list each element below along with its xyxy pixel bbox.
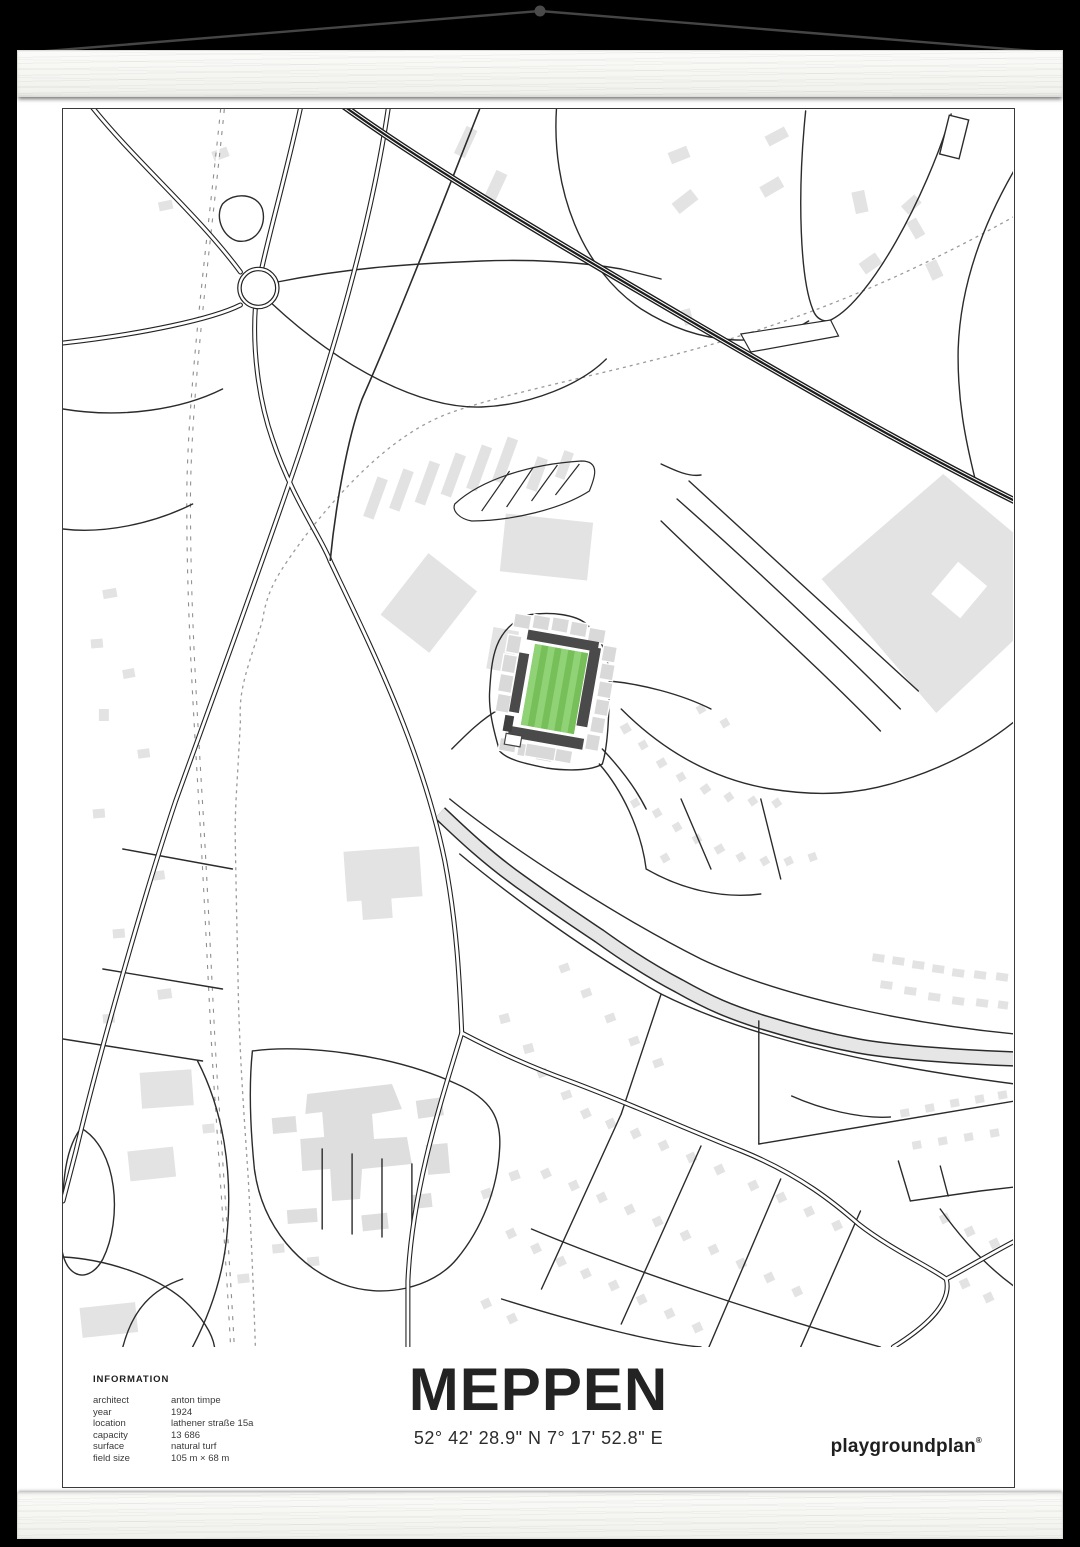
building-footprint	[783, 856, 794, 867]
building-footprint	[272, 1243, 285, 1253]
building-footprint	[989, 1128, 999, 1137]
building-footprint	[415, 460, 440, 505]
registered-mark: ®	[976, 1436, 982, 1445]
school-building	[343, 846, 422, 901]
building-footprint	[652, 1216, 664, 1228]
building-footprint	[668, 146, 691, 165]
building-footprint	[925, 259, 943, 280]
string-knot	[535, 6, 546, 17]
building-footprint	[363, 476, 388, 519]
building-footprint	[713, 1164, 725, 1176]
building-footprint	[892, 956, 905, 966]
building-footprint	[596, 1192, 608, 1204]
warehouse-building	[822, 474, 1013, 713]
roundabout	[239, 269, 277, 307]
building-footprint	[928, 992, 941, 1002]
building-footprint	[719, 718, 730, 729]
building-footprint	[808, 852, 818, 862]
building-footprint	[506, 1313, 518, 1325]
highway	[330, 109, 1013, 501]
wood-hanger-bottom	[17, 1492, 1063, 1539]
building-footprint	[499, 1013, 511, 1024]
building-footprint	[997, 1090, 1007, 1099]
building-footprint	[700, 783, 712, 795]
building-footprint	[771, 797, 782, 808]
building-footprint	[555, 1256, 567, 1268]
building-footprint	[558, 963, 570, 974]
building-footprint	[880, 980, 893, 990]
string-line	[22, 11, 1058, 53]
building-footprint	[747, 1180, 759, 1192]
building-footprint	[652, 808, 663, 819]
brand-logo: playgroundplan®	[831, 1436, 982, 1458]
dual-roads-casing	[63, 109, 1013, 1347]
building-footprint	[480, 1298, 492, 1310]
building-footprint	[692, 1322, 704, 1334]
building-footprint	[530, 1243, 542, 1255]
building-footprint	[508, 1170, 520, 1182]
building-footprint	[723, 791, 734, 802]
wood-hanger-top	[17, 50, 1063, 97]
building-footprint	[202, 1123, 215, 1133]
building-footprint	[211, 147, 229, 162]
building-footprint	[157, 988, 172, 1000]
building-footprint	[672, 189, 699, 214]
building-footprint	[696, 704, 707, 715]
building-footprint	[912, 1140, 922, 1149]
dual-roads-core	[63, 109, 1013, 1347]
building-footprint	[628, 1036, 640, 1047]
building-footprint	[389, 468, 414, 511]
building-footprint	[580, 1268, 592, 1280]
building-footprint	[137, 748, 150, 759]
building-footprint	[441, 452, 466, 497]
bridge-link	[741, 320, 839, 352]
building-footprint	[747, 795, 758, 806]
building-footprint	[906, 218, 925, 240]
estate-complex	[272, 1084, 450, 1231]
stadium-map	[63, 109, 1013, 1347]
building-footprint	[658, 1140, 670, 1152]
building-footprint	[996, 972, 1009, 982]
building-footprint	[904, 986, 917, 996]
building-footprint	[672, 822, 683, 833]
building-footprint	[237, 1273, 250, 1283]
building-footprint	[831, 1220, 843, 1232]
building-footprint	[660, 853, 671, 864]
building-footprint	[454, 126, 477, 158]
building-footprint	[466, 445, 492, 492]
brand-text: playgroundplan	[831, 1436, 976, 1457]
building-footprint	[523, 1043, 535, 1054]
building-footprint	[983, 1292, 995, 1304]
info-row: field size105 m × 68 m	[93, 1453, 253, 1465]
map-frame	[62, 108, 1015, 1488]
building-footprint	[759, 856, 770, 867]
building-footprint	[959, 1278, 971, 1290]
building-footprint	[925, 1103, 935, 1112]
building-footprint	[505, 1228, 517, 1240]
industrial-building	[381, 553, 478, 653]
building-footprint	[938, 1136, 948, 1145]
building-footprint	[608, 1280, 620, 1292]
building-footprint	[664, 1308, 676, 1320]
poster-scene: INFORMATION architectanton timpeyear1924…	[0, 0, 1080, 1547]
building-footprint	[952, 968, 965, 978]
building-footprint	[580, 988, 592, 999]
building-footprint	[158, 200, 174, 212]
building-footprint	[974, 1094, 984, 1103]
building-footprint	[791, 1286, 803, 1298]
building-footprint	[950, 1098, 960, 1107]
minor-roads	[63, 109, 1013, 1347]
building-footprint	[998, 1000, 1009, 1009]
building-footprint	[636, 1294, 648, 1306]
building-footprint	[759, 176, 784, 197]
building-footprint	[91, 638, 104, 648]
building-footprint	[932, 964, 945, 974]
building-footprint	[630, 798, 641, 809]
building-footprint	[964, 1132, 974, 1141]
building-footprint	[900, 1108, 910, 1117]
building-footprint	[803, 1206, 815, 1218]
building-footprint	[560, 1090, 572, 1101]
building-footprint	[620, 722, 632, 734]
hall-building	[500, 514, 593, 581]
building-footprint	[974, 970, 987, 980]
building-footprint	[952, 996, 965, 1006]
building-footprint	[652, 1058, 664, 1069]
building-footprint	[630, 1128, 642, 1140]
building-footprint	[714, 843, 726, 854]
building-footprint	[604, 1013, 616, 1024]
building-footprint	[735, 1258, 747, 1270]
building-footprint	[580, 1108, 592, 1120]
building-footprint	[764, 126, 789, 146]
building-footprint	[638, 740, 649, 751]
map-area	[63, 109, 1013, 1347]
building-footprint	[656, 757, 668, 768]
building-footprint	[540, 1168, 552, 1180]
building-footprint	[763, 1272, 775, 1284]
building-footprint	[872, 953, 885, 963]
building-footprint	[99, 709, 109, 721]
building-footprint	[735, 852, 746, 863]
building-footprint	[964, 1226, 976, 1238]
building-footprint	[859, 252, 883, 274]
building-footprint	[93, 808, 106, 818]
building-footprint	[624, 1204, 636, 1216]
building-footprint	[912, 960, 925, 970]
building-footprint	[676, 772, 687, 783]
building-footprint	[851, 190, 868, 214]
building-footprint	[122, 668, 135, 679]
building-footprint	[976, 998, 989, 1008]
building-footprint	[775, 1192, 787, 1204]
building-footprint	[568, 1180, 580, 1192]
building-footprint	[680, 1230, 692, 1242]
poster-title: MEPPEN	[62, 1358, 1015, 1422]
building-footprint	[707, 1244, 719, 1256]
building-footprint	[102, 588, 117, 599]
building-footprint	[112, 928, 125, 938]
